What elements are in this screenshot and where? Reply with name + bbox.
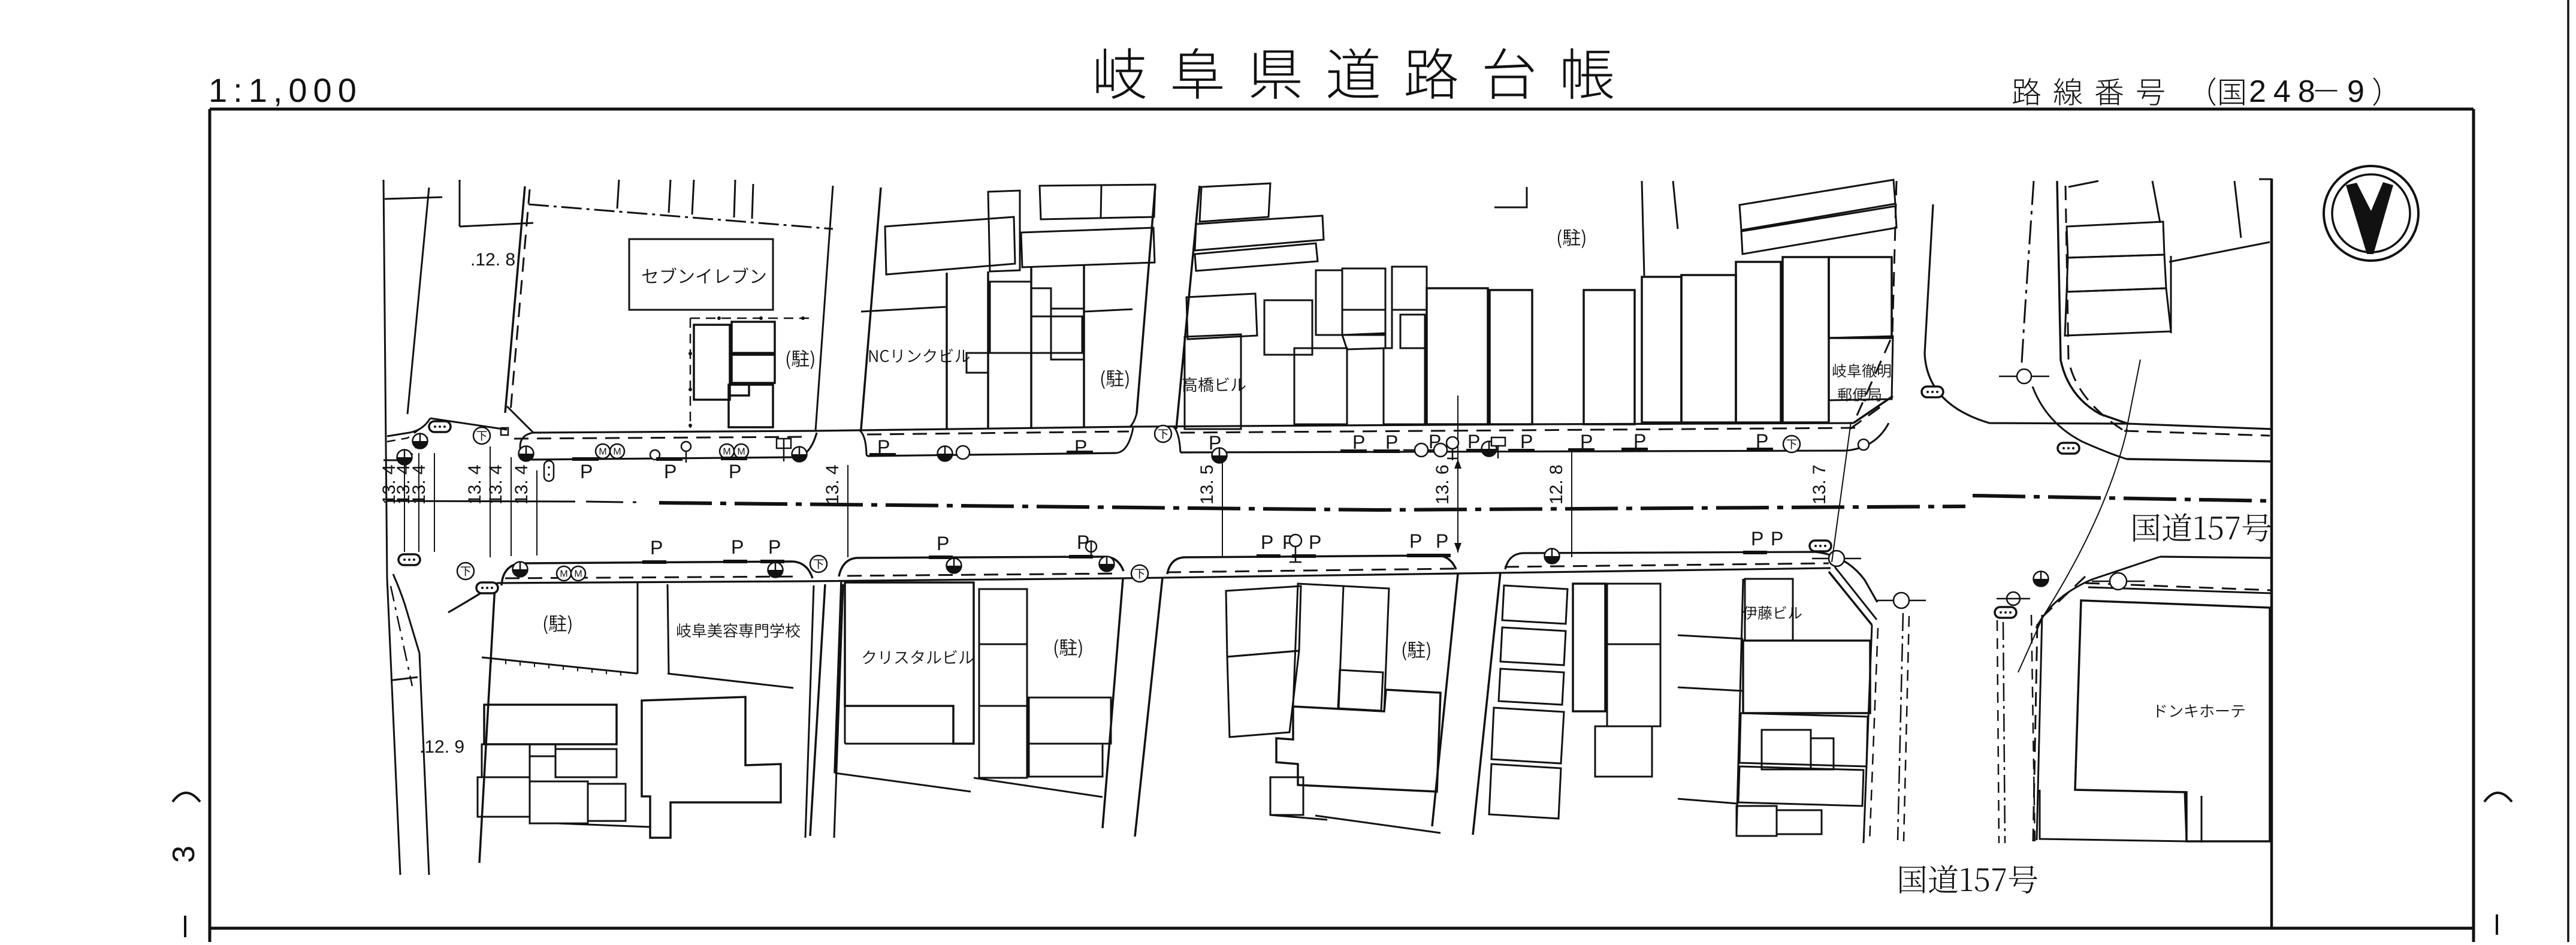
- svg-text:M: M: [574, 569, 582, 579]
- svg-text:13. 4: 13. 4: [409, 464, 429, 505]
- svg-text:M: M: [613, 447, 621, 457]
- svg-text:13. 4: 13. 4: [465, 464, 485, 505]
- svg-text:M: M: [737, 447, 745, 457]
- svg-text:M: M: [560, 569, 567, 579]
- svg-text:P: P: [937, 533, 949, 554]
- svg-text:P: P: [1409, 530, 1422, 552]
- svg-text:13. 5: 13. 5: [1197, 464, 1217, 505]
- svg-text:P: P: [1771, 528, 1783, 550]
- svg-text:13. 6: 13. 6: [1433, 464, 1452, 505]
- svg-text:P: P: [731, 536, 744, 558]
- svg-text:1:1,000: 1:1,000: [209, 71, 363, 109]
- svg-text:M: M: [599, 447, 606, 457]
- svg-text:13. 4: 13. 4: [823, 464, 842, 505]
- svg-text:.12. 9: .12. 9: [419, 737, 464, 757]
- svg-text:P: P: [729, 461, 741, 482]
- svg-text:9: 9: [2347, 74, 2364, 109]
- svg-text:P: P: [664, 461, 677, 482]
- svg-text:P: P: [1074, 436, 1087, 458]
- svg-text:248: 248: [2249, 74, 2323, 109]
- svg-text:P: P: [580, 461, 593, 482]
- svg-text:13. 4: 13. 4: [512, 464, 531, 505]
- svg-text:P: P: [1309, 532, 1321, 553]
- svg-text:3: 3: [167, 846, 201, 863]
- svg-text:13. 4: 13. 4: [486, 464, 506, 505]
- svg-text:P: P: [1261, 532, 1273, 553]
- svg-text:P: P: [1436, 530, 1448, 552]
- svg-text:13. 7: 13. 7: [1810, 464, 1829, 505]
- svg-text:12. 8: 12. 8: [1547, 464, 1566, 505]
- svg-text:P: P: [650, 537, 663, 558]
- svg-text:P: P: [1751, 528, 1763, 550]
- svg-text:.12. 8: .12. 8: [470, 250, 515, 270]
- svg-text:M: M: [723, 447, 730, 457]
- svg-text:P: P: [768, 536, 781, 558]
